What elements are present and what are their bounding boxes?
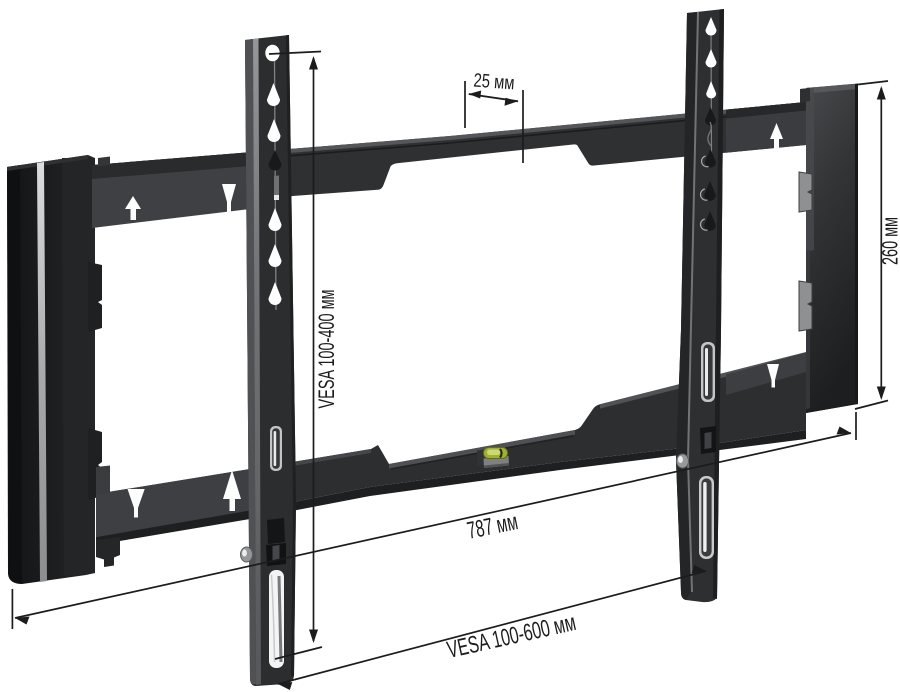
svg-text:260 мм: 260 мм xyxy=(878,217,900,265)
svg-text:VESA 100-400 мм: VESA 100-400 мм xyxy=(314,290,339,409)
svg-text:25 мм: 25 мм xyxy=(473,70,515,95)
